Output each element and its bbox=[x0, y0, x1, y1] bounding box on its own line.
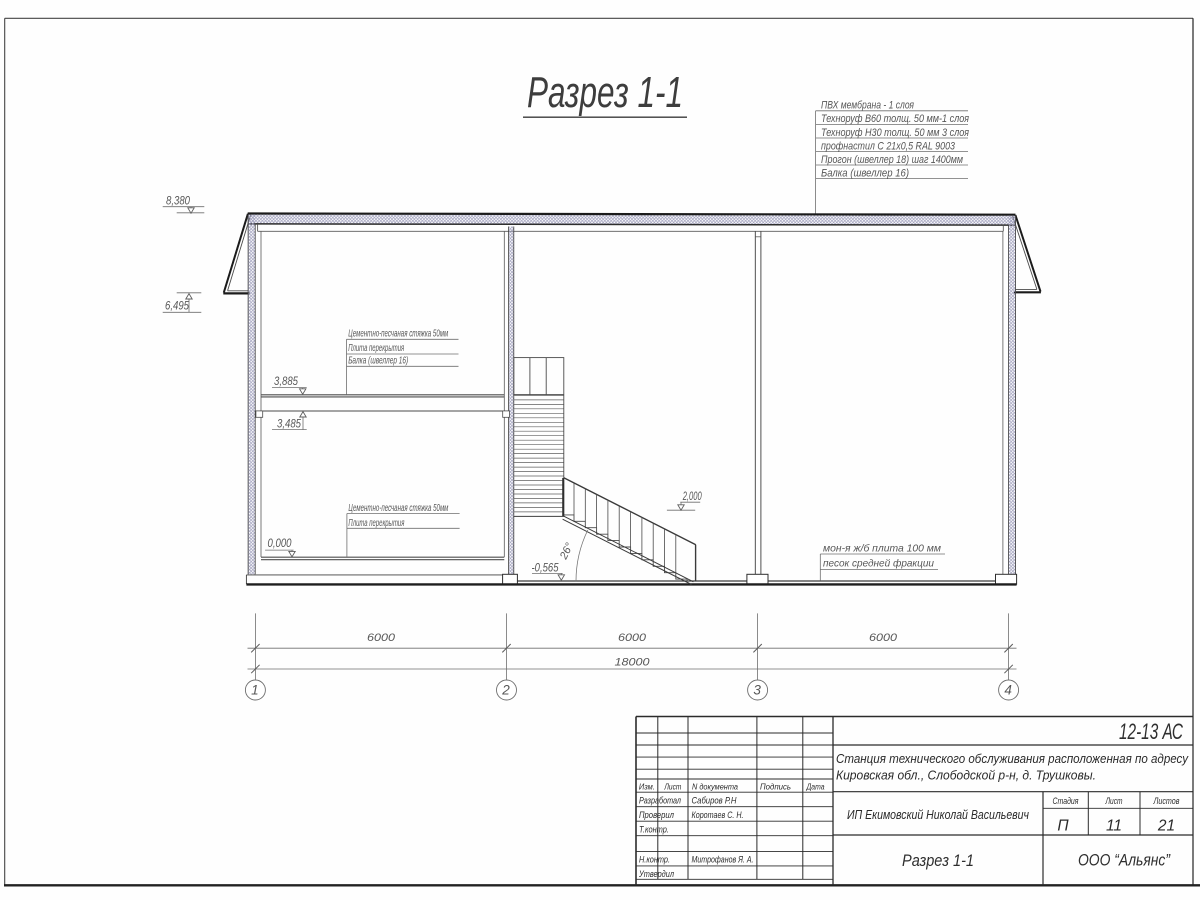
svg-text:Разрез 1-1: Разрез 1-1 bbox=[527, 68, 683, 117]
svg-text:2,000: 2,000 bbox=[682, 491, 702, 503]
svg-text:ООО “Альянс”: ООО “Альянс” bbox=[1078, 852, 1171, 870]
svg-text:12-13 АС: 12-13 АС bbox=[1119, 719, 1183, 744]
svg-text:3,885: 3,885 bbox=[274, 376, 299, 388]
svg-text:Прогон (швеллер 18) шаг 1400мм: Прогон (швеллер 18) шаг 1400мм bbox=[821, 154, 963, 166]
svg-text:Плита перекрытия: Плита перекрытия bbox=[348, 342, 404, 354]
svg-text:Плита перекрытия: Плита перекрытия bbox=[348, 517, 404, 529]
svg-text:профнастил С 21х0,5 RAL 9003: профнастил С 21х0,5 RAL 9003 bbox=[821, 140, 956, 152]
svg-text:песок средней фракции: песок средней фракции bbox=[823, 557, 934, 569]
svg-text:Разработал: Разработал bbox=[639, 795, 681, 805]
svg-text:Проверил: Проверил bbox=[639, 810, 674, 820]
svg-text:Кировская обл., Слободской р-н: Кировская обл., Слободской р-н, д. Трушк… bbox=[836, 768, 1096, 783]
svg-text:Станция технического обслужива: Станция технического обслуживания распол… bbox=[836, 751, 1189, 766]
svg-text:Изм.: Изм. bbox=[639, 781, 655, 791]
svg-text:18000: 18000 bbox=[615, 656, 651, 668]
svg-text:N документа: N документа bbox=[692, 781, 738, 791]
svg-text:6000: 6000 bbox=[618, 632, 647, 644]
svg-text:11: 11 bbox=[1106, 818, 1122, 835]
svg-text:Т.контр.: Т.контр. bbox=[639, 824, 669, 834]
svg-text:ПВХ мембрана - 1 слоя: ПВХ мембрана - 1 слоя bbox=[821, 100, 914, 112]
svg-text:Цементно-песчаная стяжка 50мм: Цементно-песчаная стяжка 50мм bbox=[348, 502, 448, 514]
svg-text:6000: 6000 bbox=[367, 632, 396, 644]
svg-text:4: 4 bbox=[1004, 683, 1012, 698]
svg-text:3: 3 bbox=[753, 683, 761, 698]
svg-text:Техноруф В60 толщ. 50 мм-1 сло: Техноруф В60 толщ. 50 мм-1 слоя bbox=[821, 113, 969, 125]
svg-text:Балка (швеллер 16): Балка (швеллер 16) bbox=[348, 355, 408, 367]
svg-text:Разрез 1-1: Разрез 1-1 bbox=[902, 852, 974, 870]
svg-text:Лист: Лист bbox=[1105, 796, 1123, 806]
svg-text:8,380: 8,380 bbox=[166, 196, 191, 208]
svg-text:Митрофанов Я. А.: Митрофанов Я. А. bbox=[692, 854, 754, 864]
svg-text:П: П bbox=[1057, 818, 1069, 835]
svg-text:Стадия: Стадия bbox=[1053, 796, 1079, 806]
svg-text:Утвердил: Утвердил bbox=[638, 869, 674, 879]
svg-text:3,485: 3,485 bbox=[277, 418, 302, 430]
svg-text:Листов: Листов bbox=[1153, 796, 1180, 806]
svg-text:мон-я ж/б плита 100 мм: мон-я ж/б плита 100 мм bbox=[823, 542, 941, 554]
svg-text:6000: 6000 bbox=[869, 632, 898, 644]
svg-text:Подпись: Подпись bbox=[760, 781, 791, 791]
svg-text:Дата: Дата bbox=[806, 781, 825, 791]
svg-text:Н.контр.: Н.контр. bbox=[639, 854, 670, 864]
svg-text:21: 21 bbox=[1157, 818, 1175, 835]
svg-text:0,000: 0,000 bbox=[268, 538, 293, 550]
svg-text:Коротаев С. Н.: Коротаев С. Н. bbox=[692, 810, 744, 820]
svg-text:Техноруф Н30 толщ. 50 мм 3 сло: Техноруф Н30 толщ. 50 мм 3 слоя bbox=[821, 127, 969, 139]
svg-text:Сабиров Р.Н: Сабиров Р.Н bbox=[692, 795, 738, 805]
svg-text:Балка (швеллер 16): Балка (швеллер 16) bbox=[821, 167, 909, 179]
svg-text:Лист: Лист bbox=[664, 781, 682, 791]
svg-text:ИП Екимовский Николай Васильев: ИП Екимовский Николай Васильевич bbox=[847, 807, 1029, 822]
svg-text:2: 2 bbox=[501, 683, 510, 698]
svg-text:1: 1 bbox=[251, 683, 259, 698]
svg-text:6,495: 6,495 bbox=[165, 301, 190, 313]
svg-text:Цементно-песчаная стяжка 50мм: Цементно-песчаная стяжка 50мм bbox=[348, 328, 448, 340]
svg-text:-0,565: -0,565 bbox=[532, 562, 559, 574]
